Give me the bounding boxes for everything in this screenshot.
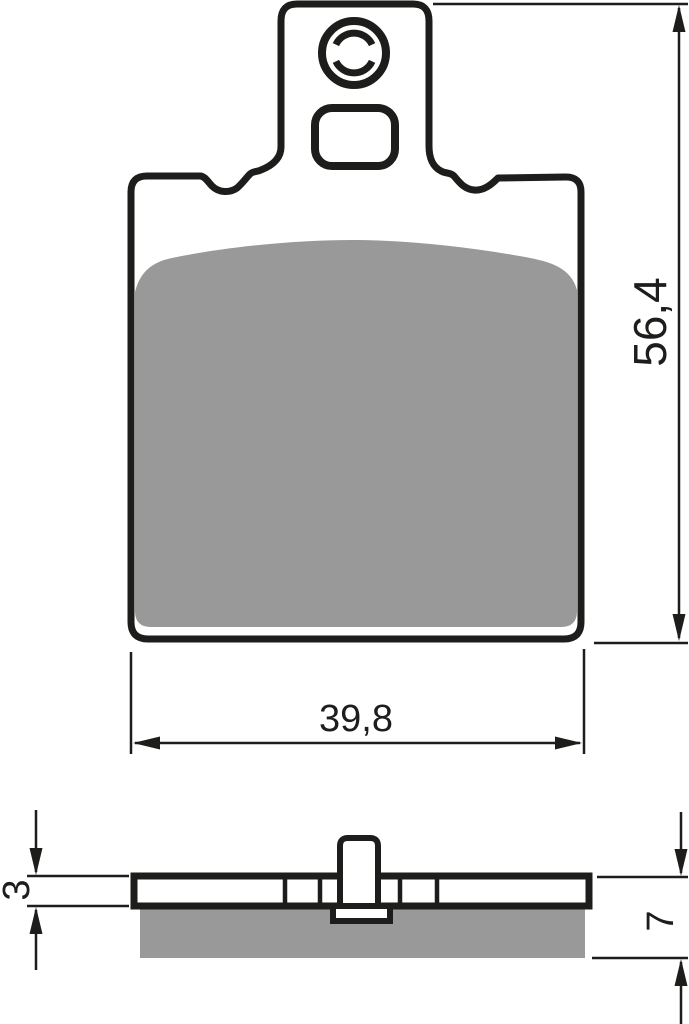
plate-thickness-label: 3 bbox=[0, 879, 38, 900]
center-tab bbox=[340, 838, 378, 903]
total-thickness-dimension: 7 bbox=[592, 812, 688, 1024]
drawing-canvas: 56,4 39,8 bbox=[0, 0, 689, 1024]
total-arrow-down bbox=[675, 849, 688, 876]
width-arrow-left bbox=[133, 737, 160, 750]
front-view: 56,4 39,8 bbox=[131, 4, 688, 754]
total-thickness-label: 7 bbox=[640, 910, 682, 931]
nib-recess bbox=[333, 906, 390, 921]
width-arrow-right bbox=[555, 737, 582, 750]
brake-pad-technical-drawing: 56,4 39,8 bbox=[0, 0, 689, 1024]
total-arrow-up bbox=[675, 959, 688, 986]
friction-material-front bbox=[135, 240, 577, 627]
width-dimension-label: 39,8 bbox=[319, 698, 393, 740]
side-view: 3 7 bbox=[0, 810, 688, 1024]
width-dimension: 39,8 bbox=[131, 649, 584, 754]
height-dimension-label: 56,4 bbox=[624, 277, 676, 367]
plate-thickness-dimension: 3 bbox=[0, 810, 129, 970]
thickness-arrow-up bbox=[30, 907, 43, 934]
height-arrow-down bbox=[673, 614, 686, 641]
height-arrow-up bbox=[673, 5, 686, 32]
thickness-arrow-down bbox=[30, 848, 43, 875]
